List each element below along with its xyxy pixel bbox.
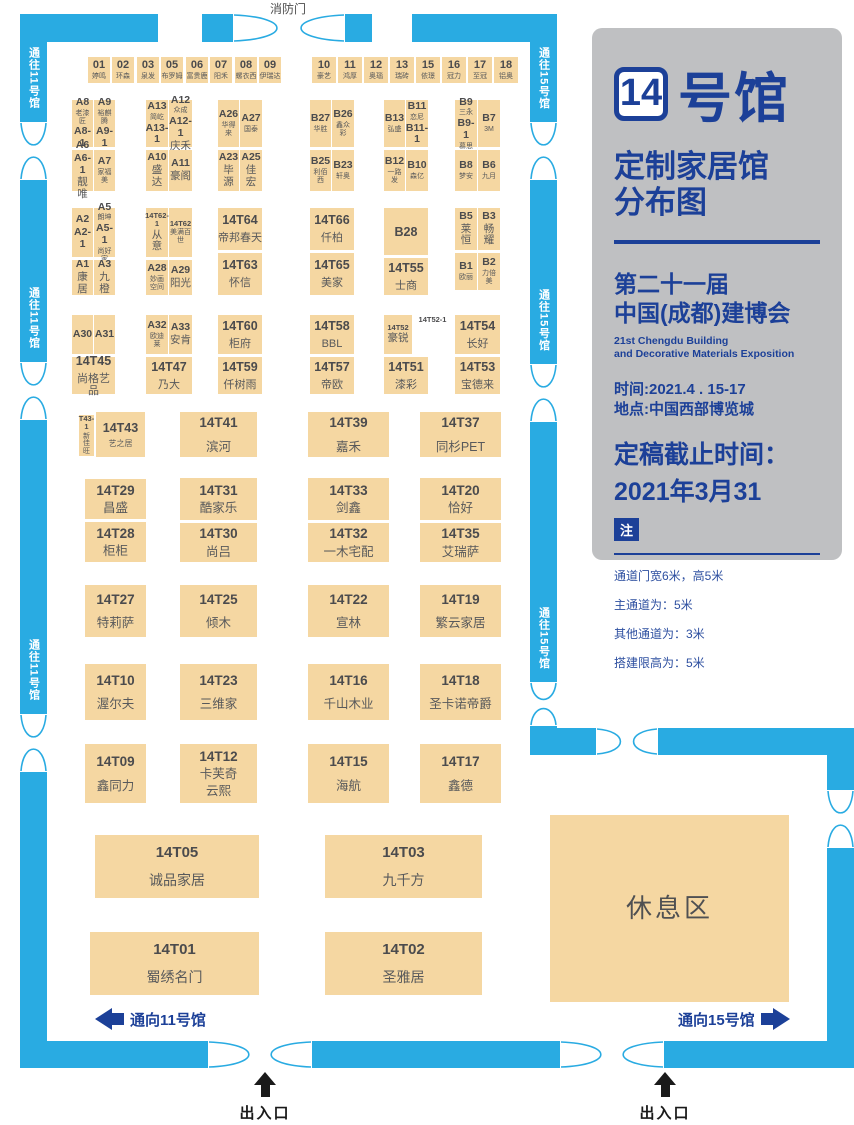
booth-label: 漆彩 [395,379,417,391]
booth-14T01: 14T01蜀绣名门 [90,932,259,995]
booth-14T27: 14T27特莉萨 [85,585,146,637]
booth-label: 07 [215,59,227,71]
booth-A27: A27国泰 [240,100,262,147]
booth-label: 泉发 [141,73,155,81]
booth-label: 柜柜 [103,544,128,558]
booth-14T55: 14T55士商 [384,258,428,295]
booth-label: 鑫德 [448,779,473,793]
booth-14T15: 14T15海航 [308,744,389,803]
booth-14T66: 14T66仟柏 [310,208,354,250]
booth-label: 螺衣西 [236,73,257,81]
booth-label: 奥瑙 [369,73,383,81]
booth-label: 国泰 [244,126,258,134]
booth-label: 14T41 [199,415,237,430]
booth-label: 倾木 [206,616,231,630]
booth-label: 15 [422,59,434,71]
booth-label: 冠力 [447,73,461,81]
booth-label: A2-1 [73,227,92,251]
booth-12: 12奥瑙 [364,57,388,83]
wall-connector [530,728,854,755]
note-badge: 注 [614,518,639,541]
wall-bottom [20,1041,854,1068]
booth-label: 布罗姆 [162,73,183,81]
booth-label: 仟树雨 [224,379,257,391]
booth-label: 12 [370,59,382,71]
booth-label: 从意 [147,230,167,254]
entrance-left: 出入口 [232,1072,298,1123]
booth-label: 新佳旺 [80,433,93,456]
booth-label: A1 [76,259,89,271]
rest-area: 休息区 [550,815,789,1002]
booth-label: A5-1 [95,223,114,247]
booth-label: B8 [459,160,472,172]
booth-label: 毕源 [219,165,238,189]
booth-label: A28 [147,263,166,275]
booth-label: 02 [117,59,129,71]
booth-label: A12 [171,95,190,107]
booth-label: A11 [171,158,190,170]
booth-A10: A10盛达 [146,150,168,191]
booth-label: 06 [191,59,203,71]
booth-label: 3M [484,126,494,134]
booth-label: 帝欧 [321,379,343,391]
booth-label: 14T10 [96,673,134,688]
booth-A28: A28妙画空间 [146,260,168,295]
booth-label: 14T37 [441,415,479,430]
booth-14T29: 14T29昌盛 [85,479,146,519]
booth-label: 同杉PET [436,440,485,454]
door-opening-icon [530,364,557,422]
booth-label: B13 [385,113,404,125]
booth-label: A10 [147,152,166,164]
booth-B13: B13弘盛 [384,100,405,147]
booth-label: 14T45 [76,354,111,368]
to-hall-15-label: 通往15号馆 [530,598,557,678]
door-opening-icon [530,122,557,180]
booth-label: 卡芙奇 [200,767,238,781]
hall-subtitle: 分布图 [614,185,824,221]
wall-right-outer [827,728,854,1068]
booth-label: 仟柏 [321,232,343,244]
booth-B5: B5莱恒 [455,208,477,250]
hall-number-badge: 14 [614,67,668,121]
booth-14T41: 14T41滨河 [180,412,257,457]
booth-label: 09 [264,59,276,71]
hall-title: 14 号馆 [614,54,824,133]
booth-label: 轩奥 [336,173,350,181]
booth-label: 豪阁 [170,171,191,183]
booth-14T45: 14T45尚格艺品 [72,357,115,394]
booth-B8: B8梦安 [455,150,477,191]
booth-05: 05布罗姆 [161,57,183,83]
booth-label: 伊瑞达 [260,73,281,81]
booth-label: A25 [241,152,260,164]
booth-label: 14T57 [314,360,349,374]
booth-label: 家福美 [95,169,114,185]
to-hall-11-label: 通往11号馆 [20,38,47,118]
booth-label: 柜府 [229,338,251,350]
booth-A11: A11豪阁 [169,150,192,191]
booth-label: 14T02 [382,942,425,959]
booth-A29: A29阳光 [169,260,192,295]
booth-14T35: 14T35艾瑞萨 [420,523,501,562]
booth-label: 特莉萨 [97,616,135,630]
booth-label: A9 [98,97,111,109]
booth-14T47: 14T47乃大 [146,357,192,394]
booth-label: 艺之居 [109,440,133,449]
booth-T43-1: T43-1新佳旺 [79,415,94,456]
booth-label: 14T22 [329,592,367,607]
booth-label: 一路发 [385,169,404,185]
booth-label: 14T35 [441,526,479,541]
booth-label: A33 [171,322,190,334]
booth-label: 瑞砖 [395,73,409,81]
booth-label: 14T03 [382,845,425,862]
booth-label: 14T60 [222,319,257,333]
booth-14T30: 14T30尚吕 [180,523,257,562]
booth-label: B6 [482,160,495,172]
booth-label: 一木宅配 [323,545,373,559]
booth-A30: A30 [72,315,93,354]
door-opening-icon [208,1041,312,1068]
note-line: 主通道为：5米 [614,596,824,613]
booth-label: B12 [385,156,404,168]
booth-11: 11鸿厚 [338,57,362,83]
booth-label: 05 [166,59,178,71]
hall-14-floorplan-poster: 消防门 通往11号馆 通往11号馆 通往11号馆 通往15号馆 通往15号馆 通… [0,0,854,1125]
right-arrow-stem [761,1013,773,1025]
booth-label: 森亿 [410,173,424,181]
booth-B10: B10森亿 [406,150,428,191]
booth-B6: B6九月 [478,150,500,191]
note-line: 其他通道为：3米 [614,625,824,642]
booth-14T16: 14T16千山木业 [308,664,389,720]
notes-list: 通道门宽6米，高5米主通道为：5米其他通道为：3米搭建限高为：5米 [614,567,824,671]
booth-label: 14T09 [96,754,134,769]
booth-B2: B2力倍美 [478,253,500,290]
booth-label: 靓唯 [73,177,92,201]
to-hall-15-nav: 通向15号馆 [672,1008,790,1030]
booth-label: 14T58 [314,319,349,333]
booth-B3: B3畅耀 [478,208,500,250]
expo-title-en: 21st Chengdu Building [614,335,824,349]
booth-15: 15依璟 [416,57,440,83]
booth-B11: B11恋尼B11-1 [406,100,428,147]
booth-label: 至冠 [473,73,487,81]
booth-label: A30 [73,329,92,341]
booth-label: 美家 [321,277,343,289]
booth-label: 长好 [467,338,489,350]
booth-label: A32 [147,320,166,332]
booth-label: A13 [147,101,166,113]
booth-14T54: 14T54长好 [455,315,500,354]
booth-A32: A32欧迪莱 [146,315,168,354]
booth-label: 阳光 [170,278,191,290]
booth-label: BBL [322,338,343,350]
booth-label: 艾瑞萨 [442,545,480,559]
expo-title: 中国(成都)建博会 [614,299,824,328]
booth-label: B11 [408,101,427,113]
to-hall-15-label: 通往15号馆 [530,38,557,118]
door-opening-icon [596,728,658,755]
to-hall-11-label: 通往11号馆 [20,278,47,358]
booth-B27: B27华胜 [310,100,331,147]
booth-label: 华胜 [314,126,328,134]
booth-label: 欧丽 [459,274,473,282]
entrance-right: 出入口 [632,1072,698,1123]
booth-14T63: 14T63怀信 [218,253,262,295]
to-hall-15-label: 通往15号馆 [530,280,557,360]
booth-label: 14T32 [329,526,367,541]
booth-A13: A13简屹A13-1 [146,100,168,147]
booth-label: 滨河 [206,440,231,454]
booth-label: 14T65 [314,258,349,272]
booth-label: 14T43 [103,421,138,435]
booth-A33: A33安肯 [169,315,192,354]
booth-label: T43-1 [79,415,94,432]
booth-label: A29 [171,265,190,277]
booth-label: 休息区 [626,894,713,923]
booth-label: 14T15 [329,754,367,769]
booth-B25: B25利佰西 [310,150,331,191]
booth-label: A23 [219,152,238,164]
booth-label: 14T64 [222,213,257,227]
booth-B7: B73M [478,100,500,147]
booth-label: 14T51 [388,360,423,374]
booth-label: 千山木业 [323,697,373,711]
booth-14T39: 14T39嘉禾 [308,412,389,457]
booth-label: A6 [76,140,89,152]
hall-subtitle: 定制家居馆 [614,149,824,185]
booth-label: B25 [311,156,330,168]
booth-label: 三维家 [200,697,238,711]
expo-title: 第二十一届 [614,270,824,299]
left-arrow-icon [95,1008,112,1030]
booth-14T52-1: 14T52-1 [414,315,451,354]
booth-label: 铝奥 [499,73,513,81]
booth-label: 三永 [459,109,473,117]
booth-label: 14T62-1 [145,212,169,229]
booth-label: 14T28 [96,526,134,541]
booth-A31: A31 [94,315,115,354]
booth-label: A2 [76,214,89,226]
booth-label: 鸿厚 [343,73,357,81]
booth-14T62: 14T62美满百世 [169,208,192,257]
booth-label: 蜀绣名门 [147,970,203,986]
booth-label: 恰好 [448,501,473,515]
booth-label: 03 [142,59,154,71]
booth-label: A5 [98,202,111,214]
booth-17: 17至冠 [468,57,492,83]
booth-A12: A12众成A12-1庆禾 [169,100,192,147]
booth-A26: A26华得来 [218,100,239,147]
wall-gap [158,14,202,42]
booth-label: 众成 [174,107,188,115]
booth-label: 13 [396,59,408,71]
booth-label: 弘盛 [388,126,402,134]
booth-label: 怀信 [229,277,251,289]
booth-label: 14T31 [199,483,237,498]
booth-label: 14T19 [441,592,479,607]
booth-A2: A2A2-1 [72,208,93,257]
booth-label: B26 [333,109,352,121]
booth-14T25: 14T25倾木 [180,585,257,637]
booth-label: 佳宏 [241,165,261,189]
booth-14T59: 14T59仟树雨 [218,357,262,394]
booth-14T62-1: 14T62-1从意 [146,208,168,257]
booth-A6: A6A6-1靓唯 [72,150,93,191]
booth-label: 剑鑫 [336,501,361,515]
booth-label: 11 [344,59,356,71]
booth-label: 14T17 [441,754,479,769]
booth-label: A26 [219,109,238,121]
booth-B23: B23轩奥 [332,150,354,191]
booth-07: 07阳禾 [210,57,232,83]
booth-A5: A5朗坤A5-1尚好家 [94,208,115,257]
booth-label: 九千方 [383,873,425,889]
booth-A3: A3九橙 [94,260,115,295]
booth-label: B10 [407,160,426,172]
booth-label: 恋尼 [410,114,424,122]
to-hall-15-text: 通向15号馆 [678,1009,755,1030]
booth-label: 梦安 [459,173,473,181]
booth-label: A27 [241,113,260,125]
booth-label: B27 [311,113,330,125]
up-arrow-stem [661,1085,670,1097]
to-hall-11-nav: 通向11号馆 [95,1008,212,1030]
booth-label: 华得来 [219,122,238,138]
booth-label: 鑫众彩 [333,122,353,138]
booth-14T53: 14T53宝德来 [455,357,500,394]
booth-label: B5 [459,211,472,223]
booth-label: 10 [318,59,330,71]
up-arrow-icon [654,1072,676,1085]
booth-14T32: 14T32一木宅配 [308,523,389,562]
hall-suffix: 号馆 [678,54,790,133]
booth-label: 14T25 [199,592,237,607]
booth-label: A7 [98,156,111,168]
booth-B12: B12一路发 [384,150,405,191]
booth-14T43: 14T43艺之居 [96,412,145,457]
booth-03: 03泉发 [137,57,159,83]
booth-label: 14T55 [388,261,423,275]
booth-label: 尚吕 [206,545,231,559]
booth-label: 14T16 [329,673,367,688]
booth-A1: A1康居 [72,260,93,295]
booth-label: 酷家乐 [200,501,238,515]
booth-label: B7 [482,113,495,125]
booth-label: 盛达 [147,165,167,189]
booth-A7: A7家福美 [94,150,115,191]
booth-14T58: 14T58BBL [310,315,354,354]
booth-label: 18 [500,59,512,71]
booth-13: 13瑞砖 [390,57,414,83]
booth-label: 嘉禾 [336,440,361,454]
booth-label: 14T52-1 [419,316,447,324]
booth-14T28: 14T28柜柜 [85,522,146,562]
booth-09: 09伊瑞达 [259,57,281,83]
booth-14T23: 14T23三维家 [180,664,257,720]
booth-label: 繁云家居 [435,616,485,630]
booth-14T51: 14T51漆彩 [384,357,428,394]
booth-label: 富贵鹿 [187,73,208,81]
expo-location: 地点:中国西部博览城 [614,400,824,420]
to-hall-11-text: 通向11号馆 [130,1009,206,1030]
booth-label: 渥尔夫 [97,697,135,711]
booth-08: 08螺衣西 [235,57,257,83]
booth-14T09: 14T09鑫同力 [85,744,146,803]
panel-divider-thin [614,553,820,555]
booth-label: 14T01 [153,942,196,959]
door-opening-icon [530,682,557,726]
expo-title-en: and Decorative Materials Exposition [614,348,824,362]
booth-label: 九月 [482,173,496,181]
booth-14T20: 14T20恰好 [420,478,501,520]
booth-label: 利佰西 [311,169,330,185]
entrance-text: 出入口 [639,1102,690,1123]
booth-label: 14T39 [329,415,367,430]
booth-14T31: 14T31酷家乐 [180,478,257,520]
booth-label: 阳禾 [214,73,228,81]
booth-B26: B26鑫众彩 [332,100,354,147]
booth-label: B11-1 [406,123,428,147]
booth-label: 九橙 [95,272,114,296]
door-opening-icon [20,362,47,420]
booth-label: 老漆匠 [73,110,92,126]
booth-label: 14T29 [96,483,134,498]
booth-label: 美满百世 [170,229,191,245]
booth-label: 朗坤 [98,214,112,222]
booth-label: 14T53 [460,360,495,374]
up-arrow-icon [254,1072,276,1085]
booth-label: 17 [474,59,486,71]
booth-label: 14T23 [199,673,237,688]
note-line: 通道门宽6米，高5米 [614,567,824,584]
to-hall-11-label: 通往11号馆 [20,630,47,710]
booth-A23: A23毕源 [218,150,239,191]
booth-label: A9-1 [95,126,114,150]
booth-label: 14T30 [199,526,237,541]
booth-10: 10豪艺 [312,57,336,83]
door-opening-icon [827,790,854,848]
booth-14T65: 14T65美家 [310,253,354,295]
door-opening-icon [560,1041,664,1068]
booth-16: 16冠力 [442,57,466,83]
booth-18: 18铝奥 [494,57,518,83]
booth-label: 帝邦春天 [218,232,262,244]
booth-14T57: 14T57帝欧 [310,357,354,394]
booth-label: A8 [76,97,89,109]
booth-label: 豪艺 [317,73,331,81]
booth-14T02: 14T02圣雅居 [325,932,482,995]
booth-label: B1 [459,261,472,273]
booth-label: 14T63 [222,258,257,272]
booth-label: 14T18 [441,673,479,688]
booth-label: 08 [240,59,252,71]
booth-A25: A25佳宏 [240,150,262,191]
booth-label: 14T05 [156,845,199,862]
booth-label: 畅耀 [479,224,499,248]
booth-14T33: 14T33剑鑫 [308,478,389,520]
right-arrow-icon [773,1008,790,1030]
panel-divider [614,240,820,244]
booth-14T03: 14T03九千方 [325,835,482,898]
booth-label: 诚品家居 [149,873,205,889]
booth-label: 云熙 [206,784,231,798]
booth-label: 海航 [336,779,361,793]
booth-label: B9-1 [456,118,476,142]
booth-14T19: 14T19繁云家居 [420,585,501,637]
